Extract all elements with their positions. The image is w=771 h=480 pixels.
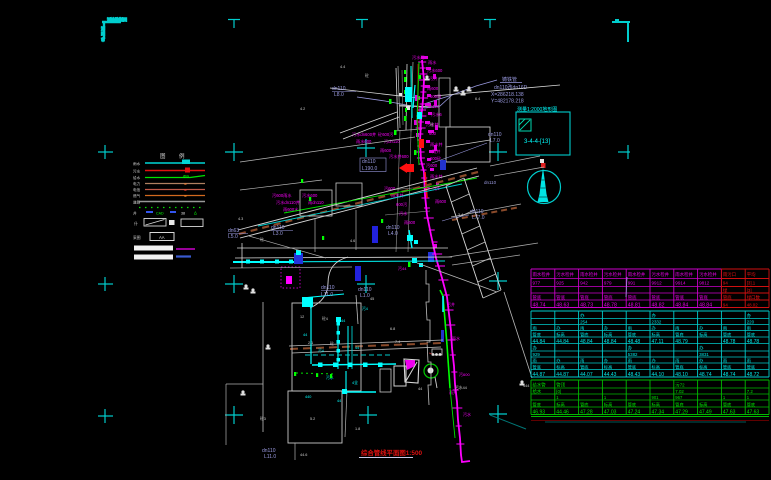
svg-text:管底: 管底 — [628, 401, 636, 408]
svg-text:L77.0: L77.0 — [472, 215, 485, 221]
svg-text:污水6: 污水6 — [431, 111, 442, 118]
svg-text:44.87: 44.87 — [533, 372, 546, 378]
svg-text:燃气: 燃气 — [133, 193, 141, 198]
svg-text:绿口数: 绿口数 — [747, 294, 761, 301]
svg-text:办: 办 — [652, 312, 657, 319]
svg-text:44: 44 — [418, 387, 422, 391]
svg-text:48.78: 48.78 — [723, 339, 736, 345]
svg-text:图: 图 — [101, 30, 105, 36]
svg-text:48.43: 48.43 — [628, 372, 641, 378]
svg-text:7.4: 7.4 — [395, 340, 400, 344]
svg-text:48.72: 48.72 — [747, 372, 760, 378]
svg-text:管底: 管底 — [580, 331, 588, 338]
svg-text:ж: ж — [184, 187, 187, 192]
svg-text:管底: 管底 — [580, 364, 588, 371]
svg-text:L4.0: L4.0 — [388, 231, 398, 237]
svg-text:审: 审 — [101, 36, 105, 42]
svg-text:给水: 给水 — [133, 175, 141, 180]
svg-text:办: 办 — [604, 357, 608, 364]
svg-text:管底: 管底 — [747, 401, 755, 408]
svg-text:办: 办 — [652, 325, 656, 332]
svg-text:9812: 9812 — [699, 281, 710, 286]
svg-text:管底: 管底 — [723, 331, 731, 338]
svg-text:254: 254 — [580, 320, 588, 325]
svg-text:45: 45 — [370, 297, 374, 301]
svg-text:48.63: 48.63 — [556, 303, 569, 309]
svg-text:7.2: 7.2 — [747, 389, 754, 394]
svg-text:600污: 600污 — [396, 201, 407, 208]
svg-text:采图: 采图 — [133, 235, 141, 240]
svg-text:12: 12 — [300, 315, 304, 319]
svg-text:48.81: 48.81 — [628, 303, 641, 309]
svg-text:管底: 管底 — [533, 294, 542, 301]
svg-text:办: 办 — [580, 312, 585, 319]
svg-text:925: 925 — [556, 281, 564, 286]
svg-text:5.2: 5.2 — [310, 417, 315, 421]
svg-text:标高: 标高 — [699, 331, 707, 338]
svg-text:44: 44 — [303, 333, 307, 337]
svg-text:电力: 电力 — [133, 181, 141, 186]
svg-text:6.4: 6.4 — [475, 97, 480, 101]
svg-text:管底: 管底 — [723, 364, 731, 371]
svg-text:标高: 标高 — [556, 331, 564, 338]
svg-text:管底: 管底 — [580, 401, 588, 408]
svg-text:管底: 管底 — [628, 331, 636, 338]
svg-text:平均: 平均 — [747, 271, 756, 278]
svg-text:管底: 管底 — [675, 401, 683, 408]
svg-text:48.10: 48.10 — [675, 372, 688, 378]
svg-text:48.74: 48.74 — [699, 372, 712, 378]
svg-text:雨水检井: 雨水检井 — [628, 271, 646, 278]
svg-text:4.6: 4.6 — [350, 239, 355, 243]
svg-text:4.3: 4.3 — [238, 217, 243, 221]
svg-text:48.84: 48.84 — [699, 303, 712, 309]
svg-text:1.8: 1.8 — [355, 427, 360, 431]
svg-text:污水44: 污水44 — [455, 385, 467, 390]
svg-text:44.43: 44.43 — [604, 372, 617, 378]
svg-text:48.02: 48.02 — [747, 303, 759, 308]
svg-text:污水检井: 污水检井 — [556, 271, 574, 278]
svg-text:管底: 管底 — [723, 401, 731, 408]
svg-text:办: 办 — [652, 357, 656, 364]
svg-text:办: 办 — [556, 357, 560, 364]
svg-text:砼4: 砼4 — [322, 316, 328, 321]
svg-text:L11.0: L11.0 — [321, 292, 333, 298]
svg-text:办: 办 — [747, 312, 752, 319]
svg-text:铸铁管: 铸铁管 — [502, 76, 517, 83]
svg-text:图: 图 — [160, 152, 166, 160]
svg-text:办: 办 — [699, 325, 703, 332]
svg-text:办: 办 — [699, 345, 704, 352]
svg-text:标高: 标高 — [652, 331, 660, 338]
svg-text:ж: ж — [184, 193, 187, 198]
svg-text:管底: 管底 — [675, 364, 683, 371]
svg-text:污水: 污水 — [326, 375, 334, 380]
svg-text:雨水: 雨水 — [133, 161, 141, 166]
svg-text:砼: 砼 — [430, 122, 434, 127]
svg-text:污水dn600井: 污水dn600井 — [352, 131, 376, 138]
svg-text:污井: 污井 — [447, 301, 455, 307]
svg-text:污600: 污600 — [426, 162, 438, 169]
svg-text:砼: 砼 — [365, 73, 369, 78]
svg-text:47.63: 47.63 — [747, 410, 760, 416]
svg-text:办: 办 — [533, 345, 538, 352]
svg-text:办: 办 — [699, 357, 703, 364]
svg-text:977: 977 — [533, 281, 541, 286]
svg-text:38: 38 — [181, 212, 185, 216]
svg-text:44.46: 44.46 — [556, 410, 569, 416]
svg-text:办: 办 — [604, 325, 608, 332]
svg-text:48.73: 48.73 — [580, 303, 593, 309]
svg-text:4全: 4全 — [352, 380, 358, 385]
svg-text:标高: 标高 — [652, 364, 660, 371]
svg-text:标高: 标高 — [556, 364, 564, 371]
svg-text:48.82: 48.82 — [652, 303, 665, 309]
svg-text:L7.0: L7.0 — [490, 138, 500, 144]
svg-text:污水: 污水 — [133, 169, 141, 174]
svg-text:220: 220 — [747, 320, 755, 325]
svg-text:管底: 管底 — [533, 331, 541, 338]
svg-text:AA: AA — [159, 235, 165, 240]
svg-text:管底: 管底 — [628, 364, 636, 371]
svg-text:4.4: 4.4 — [340, 65, 345, 69]
svg-text:46.93: 46.93 — [533, 410, 546, 416]
svg-text:L5.0: L5.0 — [228, 234, 238, 240]
svg-text:47.11: 47.11 — [652, 339, 664, 345]
svg-text:94: 94 — [723, 303, 728, 308]
svg-text:什: 什 — [134, 220, 138, 226]
svg-text:管底: 管底 — [675, 331, 683, 338]
svg-text:L11.0: L11.0 — [264, 454, 276, 460]
svg-text:例: 例 — [179, 152, 185, 160]
svg-text:砼3: 砼3 — [260, 416, 266, 421]
svg-text:dn110: dn110 — [321, 285, 335, 291]
svg-text:管底: 管底 — [675, 294, 684, 301]
svg-text:CAD: CAD — [156, 212, 164, 216]
svg-text:dn110: dn110 — [362, 159, 376, 165]
svg-text:44: 44 — [341, 319, 345, 323]
svg-text:3831: 3831 — [699, 352, 709, 357]
svg-text:48.79: 48.79 — [675, 339, 688, 345]
svg-text:污dn110: 污dn110 — [384, 138, 400, 145]
svg-text:967: 967 — [675, 395, 683, 400]
svg-text:9914: 9914 — [675, 281, 686, 286]
svg-text:47.28: 47.28 — [580, 410, 593, 416]
svg-text:砼: 砼 — [330, 341, 334, 346]
svg-text:污水井600: 污水井600 — [389, 153, 409, 160]
svg-text:979: 979 — [604, 281, 612, 286]
svg-text:污水dn110井: 污水dn110井 — [276, 199, 300, 206]
svg-text:雨水检井: 雨水检井 — [675, 271, 693, 278]
svg-text:48.48: 48.48 — [628, 339, 641, 345]
svg-text:48.78: 48.78 — [747, 339, 760, 345]
svg-text:942: 942 — [580, 281, 588, 286]
svg-text:绿: 绿 — [723, 287, 728, 293]
svg-text:管底: 管底 — [533, 364, 541, 371]
svg-text:929: 929 — [533, 352, 541, 357]
svg-text:标高: 标高 — [699, 401, 707, 408]
svg-text:管底: 管底 — [699, 294, 708, 301]
svg-text:4.2: 4.2 — [300, 107, 305, 111]
svg-text:dn110: dn110 — [484, 180, 497, 185]
svg-text:L190.0: L190.0 — [362, 166, 378, 172]
svg-text:48.84: 48.84 — [675, 303, 688, 309]
svg-text:3-4-4-[13]: 3-4-4-[13] — [524, 139, 550, 145]
svg-text:L8.0: L8.0 — [334, 92, 344, 98]
svg-text:给水: 给水 — [533, 388, 542, 395]
svg-text:污4: 污4 — [318, 348, 324, 353]
svg-text:标高: 标高 — [604, 331, 612, 338]
svg-text:94: 94 — [723, 281, 728, 286]
svg-text:L1.0: L1.0 — [360, 293, 370, 299]
svg-text:砼: 砼 — [260, 237, 264, 242]
svg-text:44: 44 — [355, 346, 359, 350]
svg-text:ж: ж — [184, 181, 187, 186]
svg-text:污水检井: 污水检井 — [604, 271, 622, 278]
svg-text:污水: 污水 — [399, 210, 408, 217]
svg-text:管底: 管底 — [652, 294, 661, 301]
svg-text:管顶: 管顶 — [556, 382, 565, 389]
svg-text:X=286218.138: X=286218.138 — [491, 92, 524, 98]
svg-text:管底: 管底 — [747, 364, 755, 371]
svg-text:污600雨水: 污600雨水 — [272, 192, 292, 199]
svg-text:砼600污: 砼600污 — [378, 131, 393, 138]
svg-text:44.07: 44.07 — [580, 372, 593, 378]
svg-text:Ф9: Ф9 — [183, 174, 189, 179]
svg-text:雨水: 雨水 — [452, 335, 460, 341]
svg-text:污水检井: 污水检井 — [699, 271, 717, 278]
svg-text:管底: 管底 — [604, 294, 613, 301]
svg-text:管底: 管底 — [580, 294, 589, 301]
svg-text:标高: 标高 — [604, 364, 612, 371]
svg-text:给水管: 给水管 — [533, 382, 547, 389]
svg-text:44.84: 44.84 — [556, 339, 569, 345]
svg-text:标高: 标高 — [556, 401, 564, 408]
svg-text:47.34: 47.34 — [652, 410, 665, 416]
svg-text:48.84: 48.84 — [604, 339, 617, 345]
svg-text:2332: 2332 — [652, 320, 662, 325]
svg-text:污水: 污水 — [463, 411, 471, 417]
svg-text:雨水: 雨水 — [428, 59, 437, 66]
svg-text:48.74: 48.74 — [533, 303, 546, 309]
svg-text:48.78: 48.78 — [604, 303, 617, 309]
svg-text:电信: 电信 — [133, 187, 141, 192]
svg-text:Δ: Δ — [194, 211, 197, 216]
svg-text:综合管线平面图1:500: 综合管线平面图1:500 — [361, 448, 423, 457]
svg-text:办: 办 — [556, 325, 560, 332]
svg-text:井: 井 — [133, 211, 137, 216]
svg-text:L3.0: L3.0 — [273, 231, 283, 237]
svg-text:5382: 5382 — [628, 352, 638, 357]
svg-text:标高: 标高 — [652, 401, 660, 408]
svg-text:污水检井: 污水检井 — [652, 271, 670, 278]
svg-text:44: 44 — [337, 399, 341, 403]
svg-text:污600: 污600 — [459, 371, 470, 377]
svg-text:47.63: 47.63 — [723, 410, 736, 416]
svg-text:991: 991 — [628, 281, 636, 286]
svg-text:2.1: 2.1 — [308, 341, 313, 345]
svg-text:办: 办 — [628, 345, 633, 352]
svg-text:47.49: 47.49 — [699, 410, 712, 416]
svg-text:雨污口: 雨污口 — [723, 271, 736, 278]
svg-text:管底: 管底 — [533, 401, 541, 408]
svg-text:雨水检井: 雨水检井 — [580, 271, 598, 278]
svg-text:9912: 9912 — [652, 281, 663, 286]
svg-text:测绘院制图: 测绘院制图 — [107, 16, 127, 22]
svg-text:6.8: 6.8 — [390, 327, 395, 331]
svg-text:47.24: 47.24 — [628, 410, 641, 416]
svg-text:污4: 污4 — [362, 306, 368, 311]
svg-text:47.03: 47.03 — [604, 410, 617, 416]
svg-text:44.10: 44.10 — [652, 372, 665, 378]
svg-text:48.84: 48.84 — [580, 339, 593, 345]
svg-text:Y=482178.218: Y=482178.218 — [491, 99, 524, 105]
svg-text:管底: 管底 — [747, 331, 755, 338]
svg-text:管底: 管底 — [723, 294, 732, 301]
svg-text:440: 440 — [305, 395, 311, 399]
svg-text:雨水检井: 雨水检井 — [533, 271, 551, 278]
svg-text:污44: 污44 — [398, 265, 407, 271]
svg-text:901: 901 — [652, 395, 660, 400]
svg-text:[3]: [3] — [747, 288, 752, 293]
svg-text:44.84: 44.84 — [533, 339, 546, 345]
svg-text:3.4: 3.4 — [458, 213, 463, 217]
svg-text:44.87: 44.87 — [556, 372, 569, 378]
svg-text:48.74: 48.74 — [723, 372, 736, 378]
svg-text:标高: 标高 — [604, 401, 612, 408]
svg-text:污72: 污72 — [675, 382, 685, 389]
svg-text:[3].1: [3].1 — [747, 281, 756, 286]
svg-text:7.02: 7.02 — [675, 389, 684, 394]
svg-text:管底: 管底 — [556, 294, 565, 301]
svg-text:47.29: 47.29 — [675, 410, 688, 416]
svg-text:[0]: [0] — [556, 389, 561, 394]
svg-text:管底: 管底 — [628, 294, 637, 301]
svg-text:标高: 标高 — [699, 364, 707, 371]
svg-text:444: 444 — [523, 384, 529, 388]
svg-text:44.6: 44.6 — [300, 453, 307, 457]
